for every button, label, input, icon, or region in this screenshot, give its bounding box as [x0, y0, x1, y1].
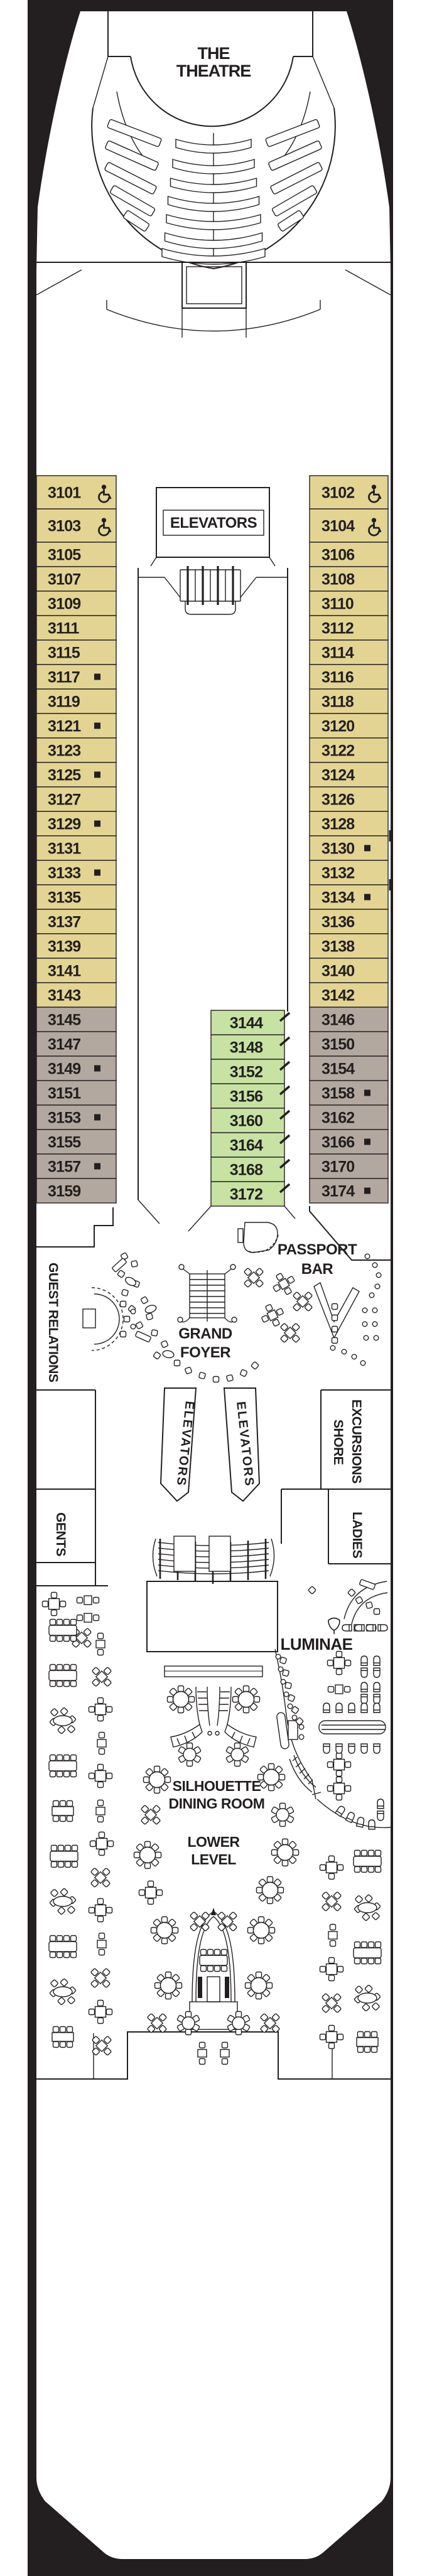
chair-icon	[323, 1703, 330, 1713]
cabin-3126[interactable]: 3126	[310, 787, 388, 811]
cabin-number: 3119	[48, 693, 80, 711]
obstructed-view-square-icon	[94, 1066, 100, 1072]
cabin-3130[interactable]: 3130	[310, 836, 388, 860]
cabin-number: 3142	[322, 987, 354, 1005]
cabin-column-left: 3101310331053107310931113115311731193121…	[35, 476, 116, 1203]
cabin-3164[interactable]: 3164	[211, 1133, 289, 1157]
cabin-3102[interactable]: 3102	[310, 476, 388, 509]
chair-icon	[285, 1682, 291, 1689]
chair-icon	[121, 1289, 128, 1296]
chair-icon	[372, 1322, 377, 1327]
obstructed-view-square-icon	[94, 1114, 100, 1121]
cabin-3109[interactable]: 3109	[36, 591, 116, 616]
cabin-number: 3149	[48, 1061, 80, 1078]
chair-icon	[369, 1293, 374, 1298]
cabin-3121[interactable]: 3121	[36, 713, 116, 738]
dining-table-icon	[97, 1733, 106, 1755]
cabin-number: 3156	[230, 1088, 262, 1106]
chair-icon	[374, 1703, 380, 1713]
cabin-3136[interactable]: 3136	[310, 909, 388, 934]
chair-icon	[374, 1335, 379, 1340]
cabin-number: 3104	[322, 518, 355, 535]
dining-table-icon	[272, 1839, 299, 1866]
cabin-3158[interactable]: 3158	[310, 1081, 388, 1105]
cabin-3114[interactable]: 3114	[310, 640, 388, 665]
cabin-3118[interactable]: 3118	[310, 689, 388, 713]
cabin-3135[interactable]: 3135	[36, 885, 116, 909]
cabin-number: 3106	[322, 547, 354, 564]
cabin-3157[interactable]: 3157	[36, 1154, 116, 1178]
dining-table-icon	[328, 1925, 337, 1947]
cabin-3127[interactable]: 3127	[36, 787, 116, 811]
cabin-number: 3124	[322, 767, 355, 784]
cabin-number: 3159	[48, 1183, 80, 1200]
cabin-3139[interactable]: 3139	[36, 934, 116, 958]
cabin-number: 3145	[48, 1012, 81, 1029]
dining-table-icon	[49, 1665, 77, 1687]
chair-icon	[372, 1308, 377, 1313]
cabin-3152[interactable]: 3152	[211, 1059, 289, 1084]
chair-icon	[299, 1724, 304, 1729]
cabin-number: 3101	[48, 484, 81, 502]
dining-table-icon	[96, 1633, 105, 1655]
chair-icon	[131, 1309, 136, 1314]
dining-room-label-line2: DINING ROOM	[169, 1795, 265, 1812]
cabin-3154[interactable]: 3154	[310, 1056, 388, 1081]
obstructed-view-square-icon	[364, 1188, 370, 1194]
chair-icon	[213, 1377, 219, 1382]
cabin-3112[interactable]: 3112	[310, 616, 388, 640]
obstructed-view-square-icon	[94, 821, 100, 827]
chair-icon	[124, 1317, 130, 1322]
cabin-number: 3127	[48, 791, 80, 809]
cabin-3106[interactable]: 3106	[310, 542, 388, 567]
dining-table-icon	[354, 1942, 381, 1964]
cabin-number: 3157	[48, 1158, 80, 1176]
cabin-3134[interactable]: 3134	[310, 885, 388, 909]
dining-table-icon	[354, 1851, 381, 1873]
dining-table-icon	[52, 2027, 73, 2048]
chair-icon	[374, 1744, 380, 1753]
cabin-number: 3158	[322, 1085, 355, 1103]
chair-icon	[292, 1715, 297, 1720]
cabin-3159[interactable]: 3159	[36, 1178, 116, 1203]
chair-icon	[284, 1692, 289, 1697]
cabin-number: 3132	[322, 865, 354, 882]
chair-icon	[332, 1315, 338, 1321]
cabin-3115[interactable]: 3115	[36, 640, 116, 665]
cabin-3140[interactable]: 3140	[310, 958, 388, 983]
chair-icon	[364, 1335, 369, 1340]
cabin-number: 3123	[48, 742, 80, 760]
cabin-3110[interactable]: 3110	[310, 591, 388, 616]
lower-level-label-line1: LOWER	[187, 1834, 240, 1850]
chair-icon	[146, 1313, 153, 1320]
cabin-3123[interactable]: 3123	[36, 738, 116, 762]
dining-table-icon	[168, 1686, 195, 1713]
chair-icon	[276, 1654, 281, 1659]
dining-table-icon	[200, 1950, 227, 1972]
obstructed-view-square-icon	[364, 845, 370, 852]
cabin-3138[interactable]: 3138	[310, 934, 388, 958]
cabin-3103[interactable]: 3103	[36, 509, 116, 542]
cabin-number: 3133	[48, 865, 80, 882]
chair-icon	[365, 1601, 372, 1608]
obstructed-view-square-icon	[364, 1139, 370, 1145]
cabin-number: 3139	[48, 938, 80, 956]
chair-icon	[336, 1744, 342, 1753]
cabin-number: 3103	[48, 518, 80, 535]
cabin-number: 3118	[322, 693, 354, 711]
cabin-3120[interactable]: 3120	[310, 713, 388, 738]
chair-icon	[352, 1354, 357, 1359]
dining-table-icon	[155, 1972, 182, 1999]
chair-icon	[323, 1744, 330, 1753]
cabin-3142[interactable]: 3142	[310, 983, 388, 1007]
ladies-label: LADIES	[350, 1512, 364, 1559]
grand-foyer-label-line1: GRAND	[178, 1325, 232, 1342]
cabin-3162[interactable]: 3162	[310, 1105, 388, 1130]
cabin-number: 3105	[48, 547, 81, 564]
cabin-number: 3126	[322, 791, 354, 809]
chair-icon	[361, 1703, 367, 1713]
lower-level-label-line2: LEVEL	[191, 1851, 236, 1868]
cabin-3105[interactable]: 3105	[36, 542, 116, 567]
cabin-3150[interactable]: 3150	[310, 1032, 388, 1056]
dining-table-icon	[144, 1766, 171, 1793]
cabin-3146[interactable]: 3146	[310, 1007, 388, 1032]
dining-table-icon	[151, 1917, 178, 1944]
gents-label: GENTS	[53, 1512, 68, 1556]
cabin-number: 3125	[48, 767, 81, 784]
chair-icon	[372, 1263, 377, 1268]
passport-bar-label-line2: BAR	[301, 1261, 333, 1278]
cabin-number: 3153	[48, 1109, 80, 1127]
obstructed-view-square-icon	[364, 894, 370, 901]
cabin-number: 3136	[322, 914, 354, 931]
cabin-number: 3166	[322, 1134, 354, 1152]
cabin-number: 3168	[230, 1162, 263, 1179]
cabin-number: 3148	[230, 1039, 263, 1057]
cabin-number: 3137	[48, 914, 80, 931]
chair-icon	[375, 1284, 380, 1289]
cabin-3168[interactable]: 3168	[211, 1157, 289, 1182]
obstructed-view-square-icon	[94, 674, 100, 680]
cabin-3160[interactable]: 3160	[211, 1108, 289, 1133]
chair-icon	[330, 1345, 335, 1350]
cabin-3116[interactable]: 3116	[310, 665, 388, 689]
cabin-number: 3140	[322, 963, 354, 980]
cabin-3101[interactable]: 3101	[36, 476, 116, 509]
shore-excursions-label-line1: SHORE	[331, 1419, 345, 1465]
cabin-number: 3109	[48, 596, 80, 613]
cabin-number: 3160	[230, 1113, 262, 1130]
cabin-number: 3130	[322, 840, 354, 858]
dining-table-icon	[258, 1764, 285, 1791]
cabin-number: 3151	[48, 1085, 81, 1103]
dining-table-icon	[50, 1846, 78, 1868]
chair-icon	[342, 1349, 347, 1354]
dining-table-icon	[97, 1933, 106, 1955]
dining-table-icon	[220, 2043, 229, 2065]
cabin-number: 3138	[322, 938, 355, 956]
cabin-3131[interactable]: 3131	[36, 836, 116, 860]
dining-room-label-line1: SILHOUETTE	[173, 1778, 261, 1794]
chair-icon	[362, 1322, 367, 1327]
chair-icon	[332, 1338, 338, 1344]
cabin-number: 3164	[230, 1137, 263, 1155]
dining-table-icon	[246, 1972, 273, 1999]
chair-icon	[281, 1679, 286, 1684]
cabin-3147[interactable]: 3147	[36, 1032, 116, 1056]
chair-icon	[361, 1744, 367, 1753]
cabin-number: 3112	[322, 620, 354, 638]
chair-icon	[185, 1367, 192, 1374]
dining-table-icon	[49, 1936, 77, 1958]
chair-icon	[175, 1360, 180, 1366]
dining-table-icon	[49, 1620, 77, 1642]
chair-icon	[374, 1609, 380, 1615]
chair-icon	[282, 1669, 289, 1676]
cabin-number: 3102	[322, 484, 354, 502]
chair-icon	[362, 1308, 367, 1313]
cabin-3117[interactable]: 3117	[36, 665, 116, 689]
cabin-3124[interactable]: 3124	[310, 762, 388, 787]
dining-table-icon	[77, 1596, 99, 1605]
cabin-number: 3116	[322, 669, 354, 687]
cabin-number: 3128	[322, 816, 355, 833]
dining-table-icon	[96, 1800, 105, 1822]
chair-icon	[226, 1374, 233, 1381]
cabin-number: 3107	[48, 571, 80, 589]
cabin-3125[interactable]: 3125	[36, 762, 116, 787]
cabin-number: 3147	[48, 1036, 80, 1054]
cabin-3151[interactable]: 3151	[36, 1081, 116, 1105]
elevator-lobby-label: ELEVATORS	[170, 515, 257, 532]
cabin-number: 3134	[322, 889, 355, 907]
cabin-3156[interactable]: 3156	[211, 1084, 289, 1108]
guest-relations-label: GUEST RELATIONS	[46, 1263, 60, 1382]
theatre-label-line2: THEATRE	[176, 61, 251, 80]
cabin-3107[interactable]: 3107	[36, 567, 116, 591]
cabin-3153[interactable]: 3153	[36, 1105, 116, 1130]
chair-icon	[198, 1372, 205, 1379]
chair-icon	[299, 1734, 304, 1740]
ship-hull	[28, 0, 393, 2576]
shore-excursions-label-line2: EXCURSIONS	[349, 1399, 364, 1483]
cabin-3137[interactable]: 3137	[36, 909, 116, 934]
dining-table-icon	[328, 1685, 350, 1694]
chair-icon	[376, 1273, 381, 1278]
grand-foyer-label-line2: FOYER	[180, 1344, 230, 1361]
cabin-number: 3135	[48, 889, 81, 907]
cabin-column-right: 3102310431063108311031123114311631183120…	[310, 476, 390, 1203]
obstructed-view-square-icon	[94, 870, 100, 876]
cabin-3149[interactable]: 3149	[36, 1056, 116, 1081]
obstructed-view-square-icon	[94, 723, 100, 729]
cabin-3144[interactable]: 3144	[211, 1010, 289, 1035]
cabin-3148[interactable]: 3148	[211, 1035, 289, 1059]
chair-icon	[332, 1327, 338, 1332]
chair-icon	[151, 1330, 158, 1336]
cabin-number: 3150	[322, 1036, 354, 1054]
chair-icon	[131, 1261, 138, 1267]
cabin-number: 3121	[48, 718, 81, 735]
chair-icon	[332, 1304, 338, 1310]
cabin-3143[interactable]: 3143	[36, 983, 116, 1007]
chair-icon	[121, 1332, 126, 1337]
cabin-3170[interactable]: 3170	[310, 1154, 388, 1178]
dining-table-icon	[233, 1686, 260, 1713]
chair-icon	[360, 1360, 365, 1365]
cabin-3141[interactable]: 3141	[36, 958, 116, 983]
chair-icon	[288, 1704, 293, 1709]
dining-table-icon	[77, 1613, 99, 1622]
cabin-number: 3117	[48, 669, 80, 687]
dining-table-icon	[49, 1755, 77, 1777]
cabin-number: 3172	[230, 1186, 262, 1204]
dining-table-icon	[52, 1801, 73, 1822]
chair-icon	[349, 1744, 355, 1753]
chair-icon	[336, 1703, 342, 1713]
cabin-3108[interactable]: 3108	[310, 567, 388, 591]
cabin-number: 3152	[230, 1064, 262, 1081]
cabin-number: 3170	[322, 1158, 354, 1176]
cabin-number: 3108	[322, 571, 355, 589]
cabin-3166[interactable]: 3166	[310, 1130, 388, 1154]
cabin-3104[interactable]: 3104	[310, 509, 388, 542]
chair-icon	[349, 1703, 355, 1713]
cabin-number: 3131	[48, 840, 81, 858]
cabin-number: 3154	[322, 1061, 355, 1078]
cabin-number: 3111	[48, 620, 80, 638]
chair-icon	[365, 1254, 370, 1259]
cabin-3145[interactable]: 3145	[36, 1007, 116, 1032]
cabin-number: 3120	[322, 718, 354, 735]
dining-table-icon	[134, 1842, 161, 1869]
cabin-number: 3155	[48, 1134, 81, 1152]
dining-table-icon	[248, 1917, 275, 1944]
cabin-number: 3129	[48, 816, 80, 833]
cabin-3122[interactable]: 3122	[310, 738, 388, 762]
cabin-number: 3114	[322, 644, 354, 662]
obstructed-view-square-icon	[94, 772, 100, 778]
luminae-label: LUMINAE	[281, 1635, 353, 1654]
cabin-3172[interactable]: 3172	[211, 1182, 289, 1206]
cabin-3174[interactable]: 3174	[310, 1178, 388, 1203]
cabin-3119[interactable]: 3119	[36, 689, 116, 713]
cabin-number: 3144	[230, 1015, 263, 1032]
cabin-3155[interactable]: 3155	[36, 1130, 116, 1154]
cabin-number: 3141	[48, 963, 81, 980]
chair-icon	[131, 1324, 136, 1329]
cabin-number: 3122	[322, 742, 354, 760]
deck-plan: THE THEATRE ELEVATORS 310131033105310731…	[0, 0, 427, 2576]
obstructed-view-square-icon	[364, 1090, 370, 1096]
cabin-number: 3162	[322, 1109, 354, 1127]
cabin-3111[interactable]: 3111	[36, 616, 116, 640]
obstructed-view-square-icon	[94, 1163, 100, 1170]
cabin-number: 3146	[322, 1012, 354, 1029]
chair-icon	[278, 1667, 283, 1672]
chair-icon	[369, 1820, 375, 1829]
dining-table-icon	[357, 2032, 378, 2053]
luminae-long-table	[319, 1721, 386, 1734]
theatre-label-line1: THE	[198, 44, 230, 63]
cabin-column-center: 31443148315231563160316431683172	[211, 1010, 289, 1206]
chair-icon	[121, 1301, 126, 1307]
dining-table-icon	[257, 1877, 284, 1904]
cabin-number: 3174	[322, 1183, 355, 1200]
passport-bar-label-line1: PASSPORT	[278, 1241, 357, 1258]
cabin-number: 3143	[48, 987, 80, 1005]
dining-table-icon	[198, 2043, 207, 2065]
cabin-number: 3115	[48, 644, 80, 662]
cabin-number: 3110	[322, 596, 354, 613]
